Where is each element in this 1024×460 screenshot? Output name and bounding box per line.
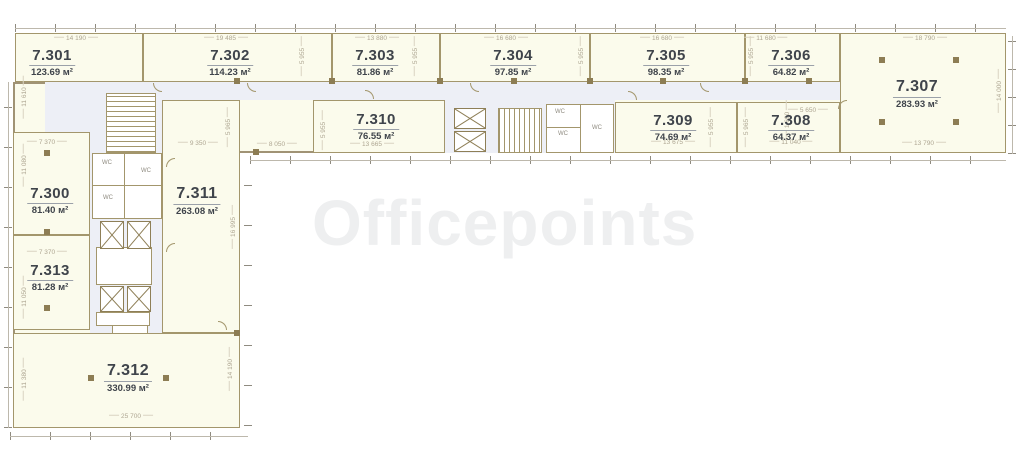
column [253, 149, 259, 155]
column [587, 78, 593, 84]
staircase-icon [106, 93, 156, 153]
room-number: 7.313 [27, 263, 73, 281]
room-label-7310: 7.310 76.55 м² [353, 111, 399, 142]
room-area: 81.28 м² [27, 283, 73, 293]
wc-label: WC [103, 195, 113, 201]
dim-label: 11 080 [22, 141, 29, 188]
room-area: 123.69 м² [29, 68, 75, 78]
elevator-icon [454, 131, 486, 152]
column [44, 305, 50, 311]
wc-wall [580, 104, 581, 153]
elevator-icon [454, 108, 486, 129]
dim-label: 14 000 [997, 67, 1004, 115]
floor-plan: WC WC WC WC WC WC 7.301 123.69 м² [0, 0, 1024, 460]
room-label-7301: 7.301 123.69 м² [29, 47, 75, 78]
dim-label: 14 190 [52, 36, 100, 43]
room-area: 64.82 м² [768, 68, 814, 78]
room-number: 7.306 [768, 48, 814, 66]
column [437, 78, 443, 84]
dim-label: 13 790 [900, 141, 948, 148]
room-area: 263.08 м² [173, 207, 220, 217]
room-area: 76.55 м² [353, 132, 399, 142]
ruler-line-left [8, 82, 9, 428]
room-number: 7.304 [490, 48, 536, 66]
column [879, 119, 885, 125]
room-area: 114.23 м² [207, 68, 253, 78]
corridor-left-entry [45, 82, 90, 132]
room-number: 7.302 [207, 48, 253, 66]
elevator-icon [127, 221, 151, 249]
ruler-line-bottom-left [10, 436, 248, 437]
dim-label: 13 665 [348, 142, 396, 149]
room-label-7300: 7.300 81.40 м² [27, 185, 73, 216]
room-label-7312: 7.312 330.99 м² [104, 362, 152, 394]
dim-label: 5 955 [579, 34, 586, 78]
wc-label: WC [102, 160, 112, 166]
column [742, 78, 748, 84]
room-label-7302: 7.302 114.23 м² [207, 47, 253, 78]
room-label-7313: 7.313 81.28 м² [27, 262, 73, 293]
room-label-7304: 7.304 97.85 м² [490, 47, 536, 78]
room-area: 81.40 м² [27, 206, 73, 216]
wc-wall [92, 185, 162, 186]
wc-label: WC [592, 125, 602, 131]
wc-label: WC [555, 109, 565, 115]
room-label-7308: 7.308 64.37 м² [768, 112, 814, 143]
column [44, 229, 50, 235]
elevator-lobby [96, 247, 152, 285]
ruler-line-top [15, 28, 1006, 29]
room-number: 7.307 [893, 79, 941, 98]
column [234, 78, 240, 84]
ruler-line-right [1012, 36, 1013, 154]
dim-label: 25 700 [107, 414, 155, 421]
column [329, 78, 335, 84]
dim-label: 8 050 [255, 142, 299, 149]
room-number: 7.309 [650, 113, 696, 131]
room-number: 7.310 [353, 112, 399, 130]
room-number: 7.311 [173, 186, 220, 205]
column [806, 78, 812, 84]
dim-label: 5 955 [321, 108, 328, 152]
wc-label: WC [141, 168, 151, 174]
column [953, 57, 959, 63]
room-label-7311: 7.311 263.08 м² [173, 185, 220, 217]
column [163, 375, 169, 381]
column [511, 78, 517, 84]
room-label-7306: 7.306 64.82 м² [768, 47, 814, 78]
elevator-icon [100, 286, 124, 312]
dim-label: 9 350 [176, 141, 220, 148]
staircase-icon [498, 108, 542, 153]
room-label-7309: 7.309 74.69 м² [650, 112, 696, 143]
dim-label: 13 880 [353, 36, 401, 43]
dim-label: 5 965 [226, 105, 233, 149]
room-area: 283.93 м² [893, 100, 941, 110]
column [88, 375, 94, 381]
dim-label: 5 965 [744, 105, 751, 149]
dim-label: 16 995 [231, 203, 238, 251]
elevator-icon [100, 221, 124, 249]
room-number: 7.300 [27, 186, 73, 204]
dim-label: 7 370 [25, 140, 69, 147]
dim-label: 5 955 [749, 34, 756, 78]
dim-label: 18 790 [901, 36, 949, 43]
dim-label: 7 370 [25, 250, 69, 257]
dim-label: 5 955 [413, 34, 420, 78]
column [879, 57, 885, 63]
room-area: 98.35 м² [643, 68, 689, 78]
ruler-line-mid [250, 160, 1006, 161]
room-number: 7.305 [643, 48, 689, 66]
dim-label: 11 610 [22, 73, 29, 120]
room-label-7305: 7.305 98.35 м² [643, 47, 689, 78]
dim-label: 5 955 [709, 105, 716, 149]
ruler-ticks-wing-right [244, 158, 252, 426]
column [234, 330, 240, 336]
column [660, 78, 666, 84]
column [953, 119, 959, 125]
dim-label: 11 380 [22, 355, 29, 402]
dim-label: 19 485 [202, 36, 250, 43]
room-label-7303: 7.303 81.86 м² [352, 47, 398, 78]
room-area: 97.85 м² [490, 68, 536, 78]
room-number: 7.312 [104, 363, 152, 382]
room-number: 7.308 [768, 113, 814, 131]
dim-label: 14 190 [228, 345, 235, 393]
dim-label: 5 955 [300, 34, 307, 78]
room-area: 74.69 м² [650, 133, 696, 143]
room-area: 81.86 м² [352, 68, 398, 78]
wc-wall [546, 127, 580, 128]
core-step [112, 325, 148, 334]
dim-label: 16 680 [638, 36, 686, 43]
wc-label: WC [558, 131, 568, 137]
room-label-7307: 7.307 283.93 м² [893, 78, 941, 110]
column [44, 150, 50, 156]
corridor-main [45, 82, 840, 100]
room-area: 64.37 м² [768, 133, 814, 143]
room-area: 330.99 м² [104, 384, 152, 394]
elevator-icon [127, 286, 151, 312]
watermark: Officepoints [312, 186, 697, 260]
dim-label: 16 680 [482, 36, 530, 43]
core-vestibule [96, 312, 150, 326]
wc-wall [124, 153, 125, 219]
room-number: 7.303 [352, 48, 398, 66]
room-number: 7.301 [29, 48, 75, 66]
